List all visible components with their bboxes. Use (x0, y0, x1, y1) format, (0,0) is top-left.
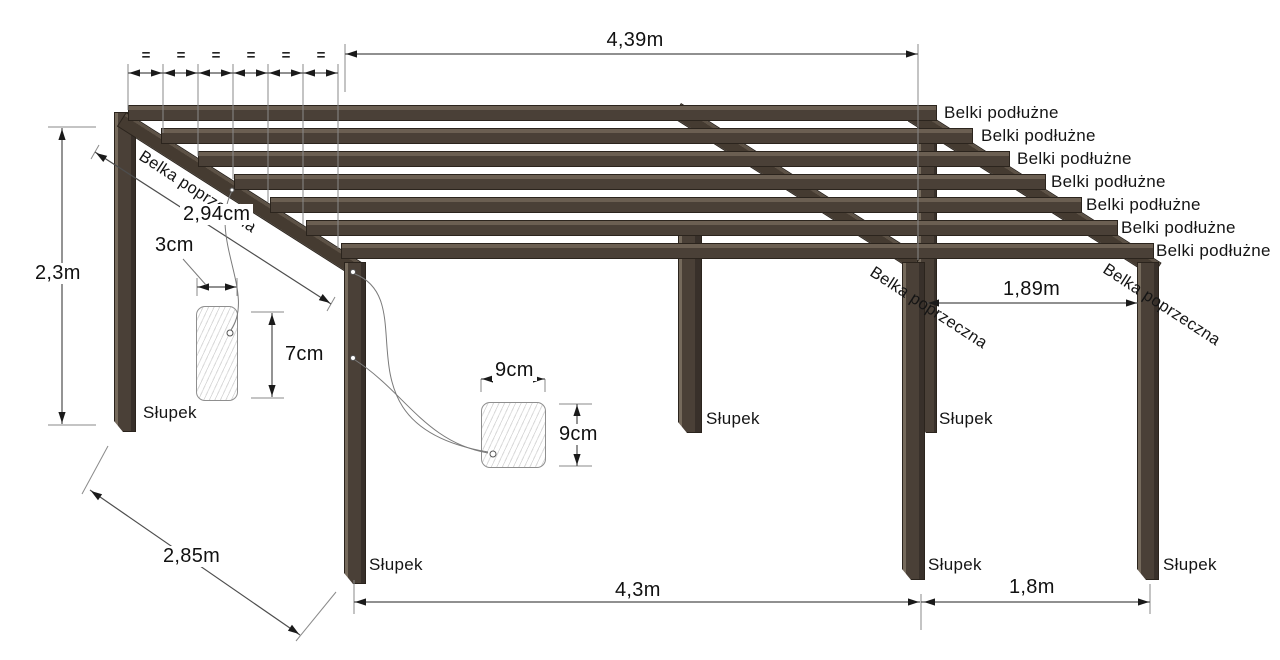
longitudinal-beam-3 (198, 151, 1010, 167)
beam-label-6: Belki podłużne (1121, 219, 1236, 237)
pergola-technical-drawing: Belki podłużne Belki podłużne Belki podł… (0, 0, 1280, 660)
post-back-left (114, 112, 136, 432)
dim-post-w: 9cm (492, 360, 537, 381)
longitudinal-beam-6 (306, 220, 1118, 236)
dim-bay-main: 4,3m (612, 580, 664, 601)
rafter-height-dimension (251, 312, 284, 398)
dim-rafter-h: 7cm (282, 344, 327, 365)
longitudinal-beam-2 (161, 128, 973, 144)
dim-depth: 2,85m (160, 546, 223, 567)
longitudinal-beam-5 (270, 197, 1082, 213)
depth-dimension (82, 446, 336, 641)
post-label-front-left: Słupek (369, 556, 423, 574)
equal-mark-1: = (139, 47, 153, 64)
beam-label-7: Belki podłużne (1156, 242, 1271, 260)
longitudinal-beam-1 (128, 105, 937, 121)
equal-mark-4: = (244, 47, 258, 64)
right-bay-dimension (927, 299, 1138, 306)
cross-beam-label-right: Belka poprzeczna (1100, 261, 1223, 350)
equal-mark-5: = (279, 47, 293, 64)
beam-label-4: Belki podłużne (1051, 173, 1166, 191)
beam-label-3: Belki podłużne (1017, 150, 1132, 168)
dim-top-span: 4,39m (592, 30, 678, 51)
dim-bay-right: 1,89m (1000, 279, 1063, 300)
post-label-back-left: Słupek (143, 404, 197, 422)
dim-cross-beam: 2,94cm (180, 204, 253, 225)
rafter-section-detail (196, 306, 238, 401)
beam-label-2: Belki podłużne (981, 127, 1096, 145)
post-front-left (344, 262, 366, 584)
beam-label-1: Belki podłużne (944, 104, 1059, 122)
post-label-front-right: Słupek (1163, 556, 1217, 574)
equal-mark-3: = (209, 47, 223, 64)
beam-label-5: Belki podłużne (1086, 196, 1201, 214)
post-label-front-middle: Słupek (928, 556, 982, 574)
post-label-back-right: Słupek (939, 410, 993, 428)
dim-height: 2,3m (32, 263, 84, 284)
post-back-middle (678, 235, 702, 433)
longitudinal-beam-4 (234, 174, 1046, 190)
dim-post-h: 9cm (556, 424, 601, 445)
post-section-detail (481, 402, 546, 468)
rafter-width-dimension (183, 259, 237, 296)
equal-mark-6: = (314, 47, 328, 64)
dim-bay-side: 1,8m (1006, 577, 1058, 598)
equal-mark-2: = (174, 47, 188, 64)
post-label-back-middle: Słupek (706, 410, 760, 428)
dim-rafter-w: 3cm (152, 235, 197, 256)
longitudinal-beam-7 (341, 243, 1154, 259)
